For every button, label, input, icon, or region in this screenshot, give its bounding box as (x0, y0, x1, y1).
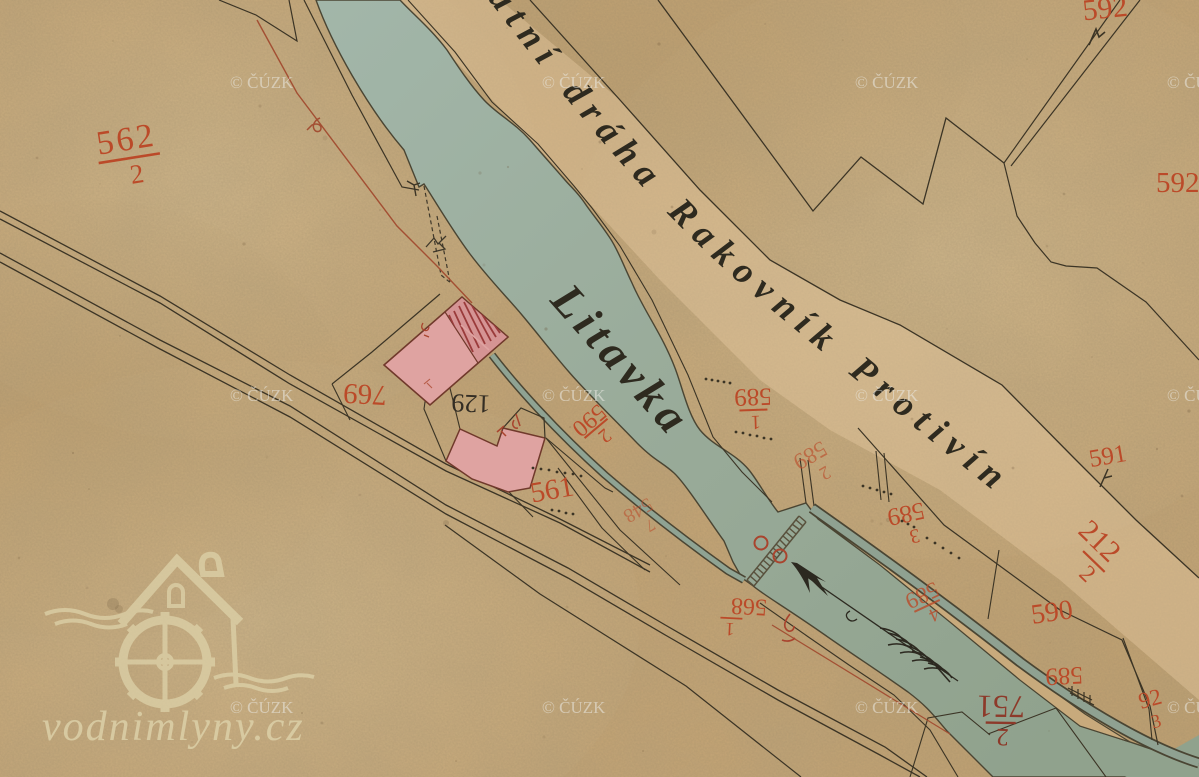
svg-text:© ČÚZK: © ČÚZK (542, 73, 606, 92)
svg-text:769: 769 (342, 377, 387, 411)
svg-text:© ČÚZK: © ČÚZK (230, 386, 294, 405)
svg-text:© ČÚZK: © ČÚZK (1167, 698, 1199, 717)
svg-text:751: 751 (977, 689, 1026, 726)
svg-text:129: 129 (451, 388, 491, 418)
svg-text:© ČÚZK: © ČÚZK (855, 386, 919, 405)
svg-text:590: 590 (1029, 594, 1075, 631)
svg-text:© ČÚZK: © ČÚZK (855, 698, 919, 717)
svg-text:© ČÚZK: © ČÚZK (230, 73, 294, 92)
svg-text:© ČÚZK: © ČÚZK (1167, 386, 1199, 405)
svg-text:568: 568 (730, 592, 767, 620)
svg-text:1: 1 (750, 411, 761, 433)
svg-text:vodnimlyny.cz: vodnimlyny.cz (42, 704, 305, 750)
svg-text:592: 592 (1156, 167, 1199, 199)
svg-text:© ČÚZK: © ČÚZK (542, 698, 606, 717)
svg-text:589: 589 (734, 382, 772, 410)
svg-text:© ČÚZK: © ČÚZK (855, 73, 919, 92)
svg-text:© ČÚZK: © ČÚZK (542, 386, 606, 405)
svg-text:592: 592 (1081, 0, 1129, 27)
svg-text:© ČÚZK: © ČÚZK (1167, 73, 1199, 92)
svg-text:2: 2 (996, 723, 1009, 750)
svg-text:1: 1 (725, 618, 736, 639)
svg-text:589: 589 (1045, 661, 1084, 690)
